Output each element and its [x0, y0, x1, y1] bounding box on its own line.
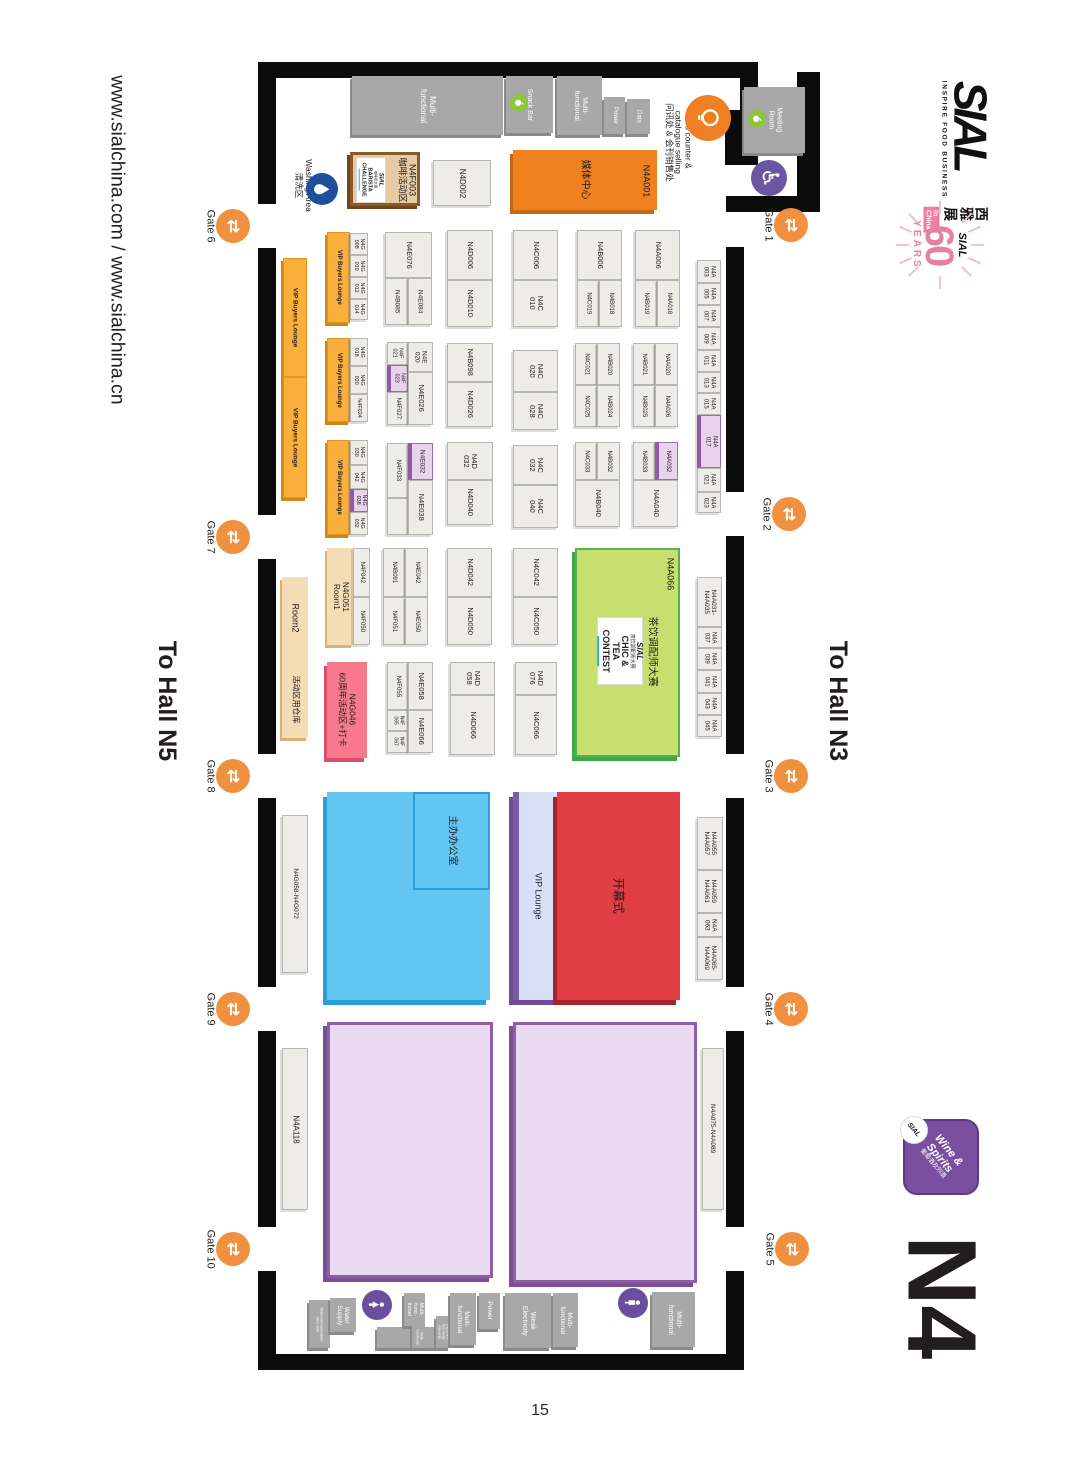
- wall-segment: [258, 248, 276, 515]
- booth-N4G042: N4G 042: [350, 465, 368, 489]
- booth-N4C020: N4C 020: [513, 350, 558, 392]
- booth-N4C028: N4C 028: [513, 392, 558, 430]
- booth-N4E058: N4E058: [408, 662, 433, 710]
- gate-label: Gate 2: [762, 509, 772, 519]
- sixty-years-sial: SIAL: [957, 232, 969, 257]
- gate-icon: ⇄: [216, 520, 250, 554]
- sial-logo-word: SIAL: [951, 81, 989, 198]
- page-number: 15: [522, 1402, 558, 1420]
- facility-multifunctional: Multi- functional: [557, 76, 602, 135]
- gate-icon: ⇄: [216, 992, 250, 1026]
- booth-N4D058: N4D 058: [450, 662, 495, 695]
- booth-N4B021: N4B021: [633, 343, 655, 385]
- booth-N4G012: N4G 012: [350, 277, 368, 299]
- booth-N4B025: N4B025: [633, 385, 655, 427]
- booth-N4A040: N4A040: [633, 480, 678, 527]
- facility-data: Data: [627, 99, 650, 134]
- booth-N4B098: N4B098: [447, 343, 493, 382]
- wall-segment: [258, 1271, 276, 1354]
- booth-N4D050: N4D050: [447, 597, 492, 645]
- booth-N4A017: N4A 017: [697, 415, 721, 468]
- booth-N4G032: N4G 032: [350, 512, 368, 535]
- booth-N4E084: N4E084: [408, 278, 432, 325]
- area-vip-buyers-lounge: VIP Buyers Lounge: [327, 440, 350, 535]
- booth-N4B033: N4B033: [633, 442, 655, 480]
- area-vip-buyers-lounge: VIP Buyers Lounge: [283, 377, 307, 498]
- wall-segment: [258, 559, 276, 754]
- washing-area-icon: [306, 173, 338, 205]
- booth-N4C033: N4C033: [575, 442, 597, 480]
- booth-N4B020: N4B020: [597, 343, 620, 385]
- booth-N4G008: N4G 008: [350, 233, 368, 255]
- tea-logo-line1: CHIC & TEA: [610, 629, 629, 673]
- booth-N4F023: N4F 023: [387, 365, 408, 392]
- gate-icon: ⇄: [774, 759, 808, 793]
- gate-icon: ⇄: [774, 992, 808, 1026]
- facility-multifunctional: Multi- functional: [352, 76, 503, 135]
- gate-icon: ⇄: [216, 759, 250, 793]
- booth-N4F067: N4F 067: [387, 731, 408, 753]
- booth-N4A015: N4A 015: [697, 393, 721, 415]
- booth-N4F051: N4F051: [383, 597, 405, 645]
- booth-N4A037: N4A 037: [697, 627, 722, 648]
- booth-N4A011: N4A 011: [697, 350, 721, 372]
- booth-N4C025: N4C025: [575, 385, 597, 427]
- booth-N4F050: N4F050: [353, 597, 370, 645]
- tea-logo-line2: CONTEST: [601, 629, 610, 673]
- booth-N4E026: N4E026: [408, 372, 433, 425]
- booth-N4B032: N4B032: [597, 442, 620, 480]
- booth-N4A075-N4A089: N4A075-N4A089: [702, 1048, 724, 1210]
- booth-N4C042: N4C042: [513, 548, 558, 597]
- booth-N4D002: N4D002: [433, 160, 491, 206]
- booth-N4D076: N4D 076: [515, 662, 557, 695]
- booth-N4F027: N4F027: [387, 392, 408, 425]
- booth-N4A013: N4A 013: [697, 372, 721, 393]
- gate-icon: ⇄: [772, 497, 806, 531]
- facility-water-supply: Water Supply: [330, 1298, 356, 1332]
- wall-segment: [258, 1354, 744, 1370]
- facility-weak-electricity: Weak Electricity: [505, 1293, 551, 1348]
- wheelchair-icon: ♿: [751, 160, 787, 196]
- gate-label: Gate 10: [206, 1244, 216, 1254]
- booth-empty: [387, 498, 408, 535]
- booth-N4G014: N4G 014: [350, 299, 368, 320]
- booth-N4D010: N4D010: [447, 280, 493, 327]
- wine-badge-sial-circle: SIAL: [900, 1116, 928, 1144]
- facility-multifunctional: Multi- func- tional: [404, 1293, 425, 1326]
- facility-power: Power: [479, 1293, 500, 1329]
- facility-multifunctional: Multi- functional: [450, 1293, 476, 1345]
- booth-N4A007: N4A 007: [697, 305, 721, 327]
- booth-N4A026: N4A026: [655, 385, 678, 427]
- booth-N4C010: N4C 010: [513, 280, 558, 327]
- booth-N4B006: N4B006: [577, 230, 622, 280]
- facility-multifunctional: Multi- functional: [412, 1326, 425, 1348]
- barista-logo-sial: SIAL: [378, 163, 384, 197]
- booth-N4E020: N4E 020: [408, 342, 433, 372]
- booth-N4D066: N4D066: [450, 695, 495, 755]
- area-60th-anniversary: N4G046 60周年活动区+打卡: [327, 662, 367, 758]
- sial-logo-tagline: INSPIRE FOOD BUSINESS: [941, 81, 948, 198]
- meeting-room-icon: [748, 110, 766, 128]
- booth-N4F055: N4F055: [387, 662, 408, 710]
- sixty-years-label: YEARS: [912, 220, 923, 269]
- gate-label: Gate 3: [764, 771, 774, 781]
- booth-N4D040: N4D040: [447, 480, 493, 525]
- booth-N4F065: N4F 065: [387, 710, 408, 731]
- wall-segment: [726, 196, 820, 212]
- chic-tea-contest-logo: SIAL 茶饮调配师大赛 CHIC & TEA CONTEST: [598, 618, 642, 684]
- facility-power: Power: [604, 97, 625, 134]
- booth-N4A021: N4A 021: [697, 468, 721, 492]
- booth-N4B018: N4B018: [599, 280, 622, 327]
- area-storage: 活动区用仓库: [282, 660, 308, 738]
- wall-segment: [726, 536, 744, 754]
- booth-N4A041: N4A 041: [697, 670, 722, 693]
- booth-N4D032: N4D 032: [447, 442, 493, 480]
- area-room1: N4G051 Room1: [327, 548, 353, 645]
- booth-N4B091: N4B091: [383, 548, 405, 597]
- booth-N4C032: N4C 032: [513, 445, 558, 485]
- area-organizer-office-label: 主办办公室: [413, 792, 490, 890]
- barista-challenge-logo: SIAL 咖啡师大赛 BARISTA CHALLENGE: [357, 158, 385, 202]
- wine-badge-sial: SIAL: [906, 1122, 922, 1139]
- booth-N4A039: N4A 039: [697, 648, 722, 670]
- booth-N4F024: N4F024: [350, 394, 368, 422]
- hall-code: N4: [936, 1292, 946, 1302]
- area-open-block: [327, 1022, 493, 1278]
- area-vip-lounge: VIP Lounge: [513, 792, 557, 1000]
- booth-N4A020: N4A020: [655, 343, 678, 385]
- booth-N4C019: N4C019: [577, 280, 599, 327]
- booth-N4F042: N4F042: [353, 548, 370, 597]
- wall-segment: [258, 62, 276, 204]
- booth-N4A018: N4A018: [657, 280, 680, 327]
- booth-N4A031-N4A035: N4A031- N4A035: [697, 577, 722, 627]
- booth-N4G010: N4G 010: [350, 255, 368, 277]
- toilet-men-icon: [618, 1288, 648, 1318]
- gate-icon: ⇄: [775, 1232, 809, 1266]
- toilet-women-icon: [362, 1290, 392, 1320]
- wall-segment: [726, 1031, 744, 1227]
- area-vip-buyers-lounge: VIP Buyers Lounge: [283, 258, 307, 377]
- wall-segment: [258, 1031, 276, 1227]
- booth-N4C006: N4C006: [513, 230, 558, 280]
- area-opening-ceremony: 开幕式: [557, 792, 680, 1000]
- booth-N4A059N4A061: N4A059 N4A061: [697, 870, 723, 913]
- booth-N4G018: N4G 018: [350, 338, 368, 366]
- facility-telecommunication: Telecommunication wire side: [309, 1300, 330, 1348]
- tea-logo-underline: [597, 636, 599, 666]
- info-counter-label: Info counter & catalogue selling 问讯处 & 会…: [673, 137, 683, 147]
- booth-N4B019: N4B019: [635, 280, 657, 327]
- wall-segment: [258, 798, 276, 987]
- gate-label: Gate 9: [206, 1004, 216, 1014]
- barista-logo-underline: [358, 169, 360, 191]
- booth-N4A006: N4A006: [635, 230, 680, 280]
- booth-N4G058-N4G072: N4G058-N4G072: [282, 815, 308, 973]
- booth-N4A032: N4A032: [655, 442, 678, 480]
- tea-logo-sial: SIAL: [635, 629, 643, 673]
- gate-icon: ⇄: [774, 208, 808, 242]
- booth-N4A055N4A057: N4A055 N4A057: [697, 817, 723, 870]
- area-open-block: [513, 1022, 697, 1283]
- barista-logo-line1: BARISTA: [367, 163, 373, 197]
- facility-explosion-discharge: Explosion Discharge Opening: [436, 1316, 450, 1348]
- facility-multifunctional: Multi- functional: [553, 1293, 578, 1347]
- facility-multifunctional: Multi- functional: [652, 1292, 695, 1347]
- to-hall-n5: To Hall N5: [162, 696, 172, 706]
- barista-logo-chinese: 咖啡师大赛: [373, 163, 378, 197]
- booth-N4C021: N4C021: [575, 343, 597, 385]
- sixty-years-logo: SIAL 60 YEARS: [885, 192, 995, 297]
- area-vip-buyers-lounge: VIP Buyers Lounge: [327, 232, 350, 323]
- sixty-years-number: 60: [923, 224, 957, 265]
- booth-N4A045: N4A 045: [697, 715, 722, 737]
- gate-label: Gate 5: [765, 1244, 775, 1254]
- booth-N4E032: N4E032: [408, 443, 433, 480]
- gate-icon: ⇄: [216, 1232, 250, 1266]
- gate-icon: ⇄: [216, 209, 250, 243]
- booth-N4A118: N4A118: [282, 1048, 308, 1210]
- booth-N4G020: N4G 020: [350, 366, 368, 394]
- booth-N4G030: N4G 030: [350, 440, 368, 465]
- booth-N4A003: N4A 003: [697, 260, 721, 283]
- booth-N4B024: N4B024: [597, 385, 620, 427]
- booth-N4F021: N4F 021: [387, 342, 408, 365]
- area-media-center: 媒体中心: [513, 150, 657, 210]
- booth-N4C050: N4C050: [513, 597, 558, 645]
- gate-label: Gate 7: [206, 532, 216, 542]
- booth-N4E042: N4E042: [405, 548, 428, 597]
- booth-N4E050: N4E050: [405, 597, 428, 645]
- booth-N4D042: N4D042: [447, 548, 492, 597]
- gate-label: Gate 1: [764, 220, 774, 230]
- booth-N4C066: N4C066: [515, 695, 557, 755]
- wine-spirits-badge: Wine & Spirits 葡萄酒及烈酒 SIAL: [898, 1112, 984, 1202]
- booth-N4C040: N4C 040: [513, 485, 558, 528]
- wall-segment: [726, 247, 744, 492]
- gate-label: Gate 4: [764, 1004, 774, 1014]
- booth-N4G038: N4G 038: [350, 489, 368, 512]
- booth-N4A043: N4A 043: [697, 693, 722, 715]
- snack-bar-icon: [510, 94, 528, 112]
- barista-logo-line2: CHALLENGE: [361, 163, 367, 197]
- booth-N4E038: N4E038: [408, 480, 433, 535]
- booth-N4A009: N4A 009: [697, 327, 721, 350]
- booth-N4E066: N4E066: [408, 710, 433, 753]
- to-hall-n3: To Hall N3: [833, 696, 843, 706]
- booth-N4B040: N4B040: [575, 480, 620, 527]
- wall-segment: [726, 798, 744, 987]
- area-room2: Room2: [282, 577, 308, 660]
- booth-N4A065-N4A069: N4A065- N4A069: [697, 937, 723, 980]
- booth-N4A023: N4A 023: [697, 492, 721, 513]
- gate-label: Gate 6: [206, 221, 216, 231]
- gate-label: Gate 8: [206, 771, 216, 781]
- booth-N4D006: N4D006: [447, 230, 493, 280]
- booth-N4D026: N4D026: [447, 382, 493, 427]
- website-url: www.sialchina.com / www.sialchina.cn: [112, 235, 122, 245]
- info-counter-icon: [685, 95, 731, 141]
- floor-plan-page: Multi- functionalSnack BarMulti- functio…: [0, 0, 1080, 1466]
- booth-N4F033: N4F033: [387, 443, 408, 498]
- area-vip-buyers-lounge: VIP Buyers Lounge: [327, 338, 350, 422]
- booth-N4A005: N4A 005: [697, 283, 721, 305]
- booth-N4E076: N4E076: [385, 232, 432, 278]
- booth-N4A063: N4A 063: [697, 913, 723, 937]
- booth-N4B085: N4B085: [385, 278, 408, 325]
